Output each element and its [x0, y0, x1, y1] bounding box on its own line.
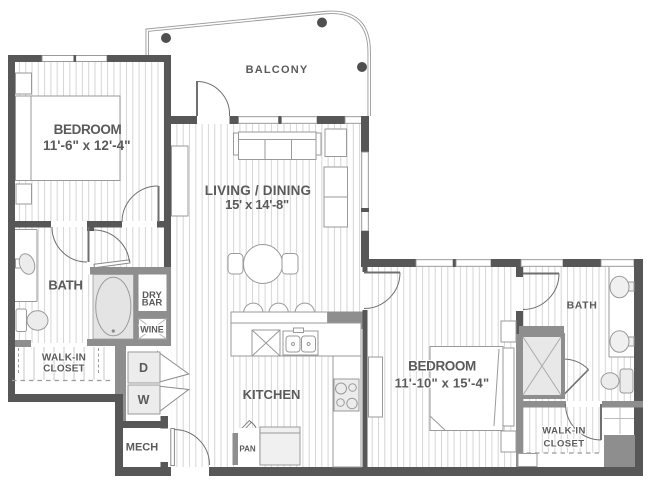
svg-text:CLOSET: CLOSET: [43, 364, 85, 375]
svg-text:11'-6" x 12'-4": 11'-6" x 12'-4": [43, 138, 131, 153]
svg-text:MECH: MECH: [126, 442, 158, 454]
svg-text:D: D: [139, 361, 148, 375]
svg-text:KITCHEN: KITCHEN: [243, 387, 301, 402]
svg-text:BATH: BATH: [48, 278, 82, 293]
svg-text:11'-10" x 15'-4": 11'-10" x 15'-4": [395, 376, 490, 391]
svg-text:WALK-IN: WALK-IN: [42, 353, 86, 364]
svg-text:BALCONY: BALCONY: [246, 64, 309, 76]
svg-text:PAN: PAN: [239, 445, 256, 454]
svg-text:BAR: BAR: [142, 298, 163, 309]
svg-text:CLOSET: CLOSET: [544, 439, 585, 450]
svg-text:WINE: WINE: [140, 325, 164, 335]
svg-text:BEDROOM: BEDROOM: [408, 359, 476, 374]
svg-text:15' x 14'-8": 15' x 14'-8": [225, 197, 289, 212]
svg-text:BATH: BATH: [567, 300, 598, 312]
svg-text:W: W: [138, 393, 150, 407]
svg-text:BEDROOM: BEDROOM: [54, 122, 122, 137]
svg-text:LIVING / DINING: LIVING / DINING: [205, 183, 312, 198]
svg-text:WALK-IN: WALK-IN: [542, 426, 585, 437]
